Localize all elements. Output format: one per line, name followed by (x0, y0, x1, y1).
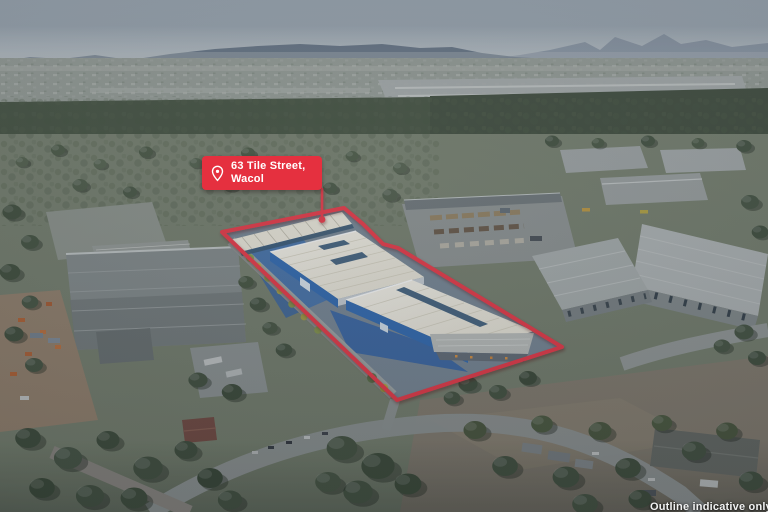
leader-dot (319, 216, 326, 223)
office-awning (430, 333, 534, 362)
address-text: 63 Tile Street, Wacol (231, 160, 305, 187)
photo-scene (0, 0, 768, 512)
address-line-1: 63 Tile Street, (231, 160, 305, 174)
disclaimer-text: Outline indicative only (650, 501, 768, 512)
property-address-label: 63 Tile Street, Wacol (202, 156, 322, 190)
aerial-photo: 63 Tile Street, Wacol Outline indicative… (0, 0, 768, 512)
location-pin-icon (210, 165, 225, 182)
address-line-2: Wacol (231, 173, 305, 187)
